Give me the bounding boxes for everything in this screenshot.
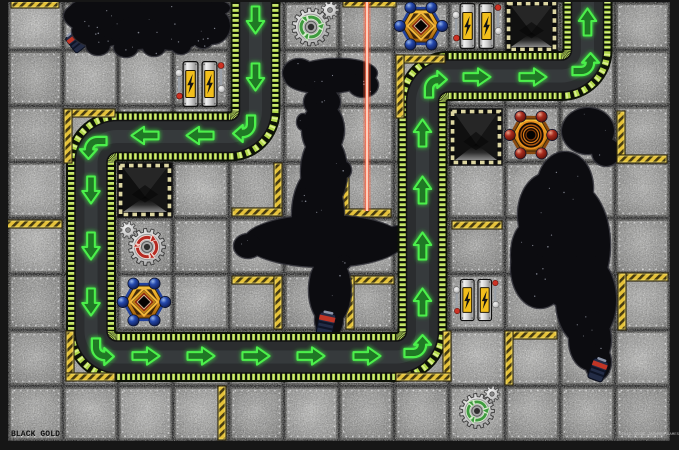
svg-text:BLACK GOLD: BLACK GOLD bbox=[11, 430, 60, 439]
svg-text:©2012 STEVE JACKSON GAMES: ©2012 STEVE JACKSON GAMES bbox=[619, 432, 679, 437]
